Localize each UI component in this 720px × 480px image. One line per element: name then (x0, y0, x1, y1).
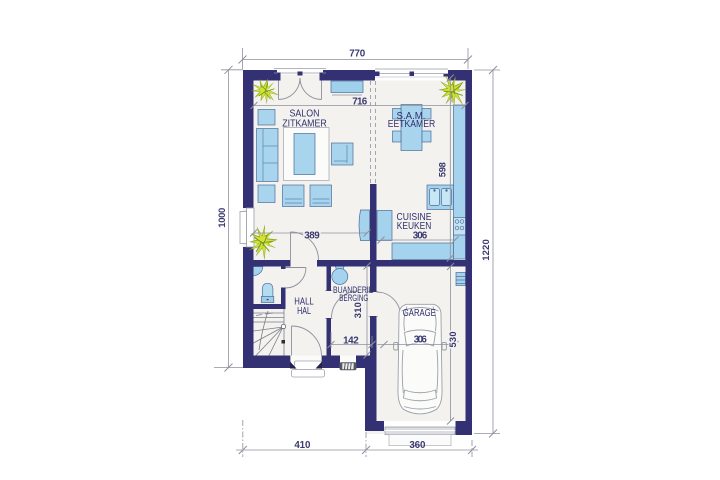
svg-text:BERGING: BERGING (339, 293, 368, 303)
svg-text:598: 598 (437, 162, 447, 177)
svg-text:530: 530 (448, 332, 458, 348)
svg-text:389: 389 (304, 230, 320, 241)
svg-text:HAL: HAL (297, 305, 311, 317)
svg-text:410: 410 (294, 440, 311, 451)
svg-text:142: 142 (343, 335, 359, 346)
svg-text:310: 310 (353, 302, 363, 318)
svg-text:360: 360 (409, 440, 426, 451)
svg-text:716: 716 (352, 97, 368, 108)
svg-text:306: 306 (414, 335, 428, 346)
svg-text:306: 306 (413, 231, 428, 242)
svg-text:770: 770 (349, 48, 366, 59)
svg-text:1220: 1220 (481, 239, 492, 261)
svg-text:ZITKAMER: ZITKAMER (282, 118, 326, 130)
svg-text:1000: 1000 (217, 208, 228, 228)
svg-text:EETKAMER: EETKAMER (388, 118, 436, 130)
svg-text:GARAGE: GARAGE (403, 307, 436, 318)
